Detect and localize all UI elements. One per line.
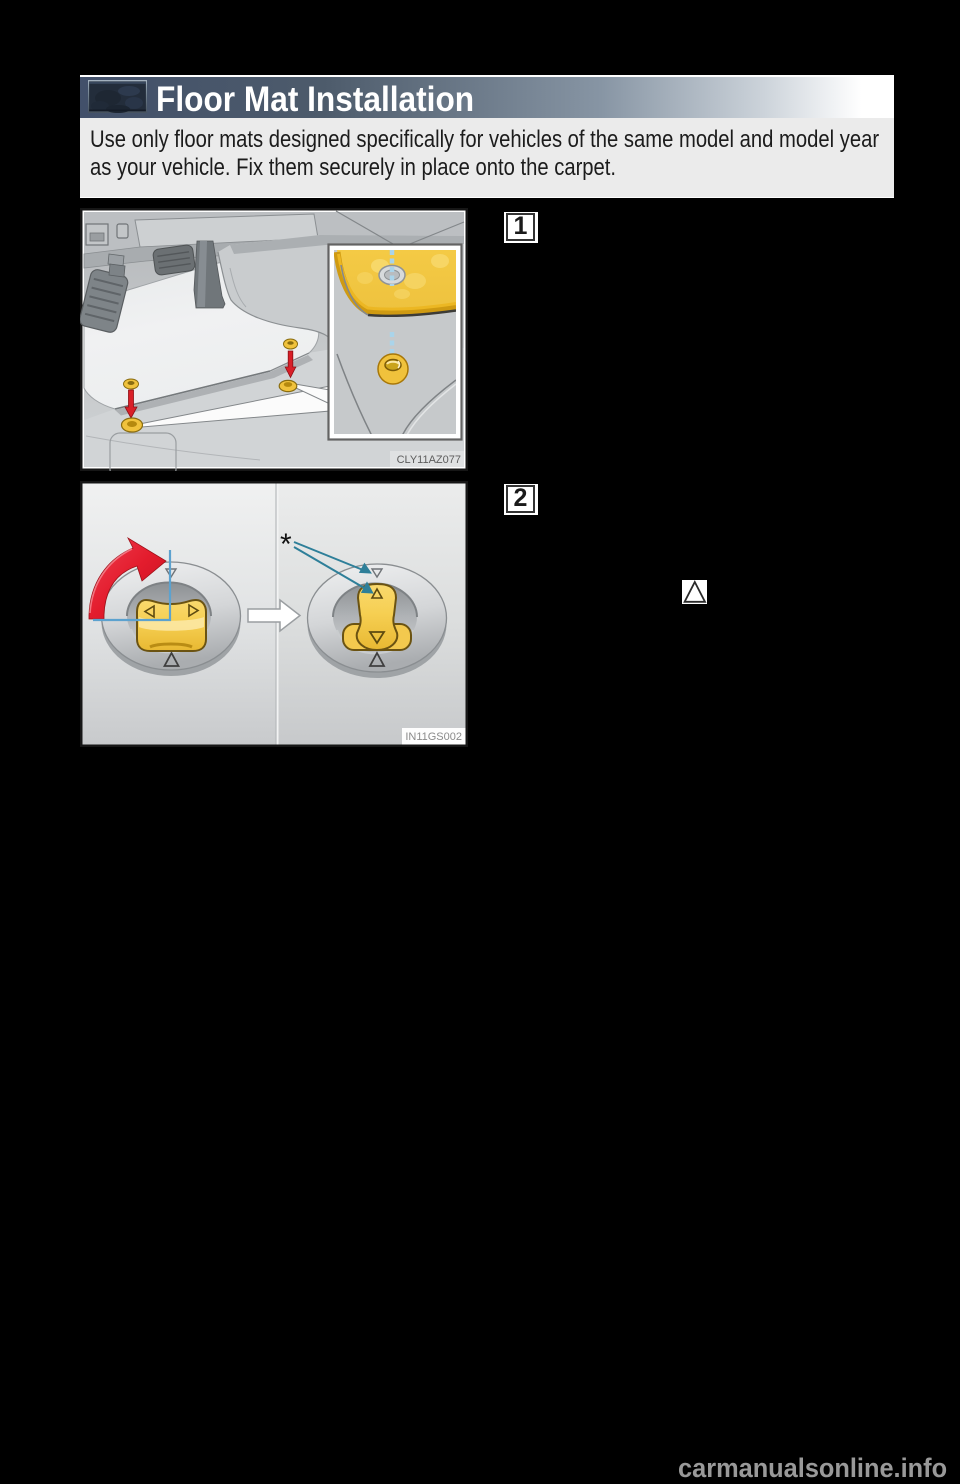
svg-text:CLY11AZ077: CLY11AZ077: [397, 454, 461, 466]
svg-text:*: *: [280, 528, 292, 561]
svg-text:IN11GS002: IN11GS002: [405, 731, 462, 743]
